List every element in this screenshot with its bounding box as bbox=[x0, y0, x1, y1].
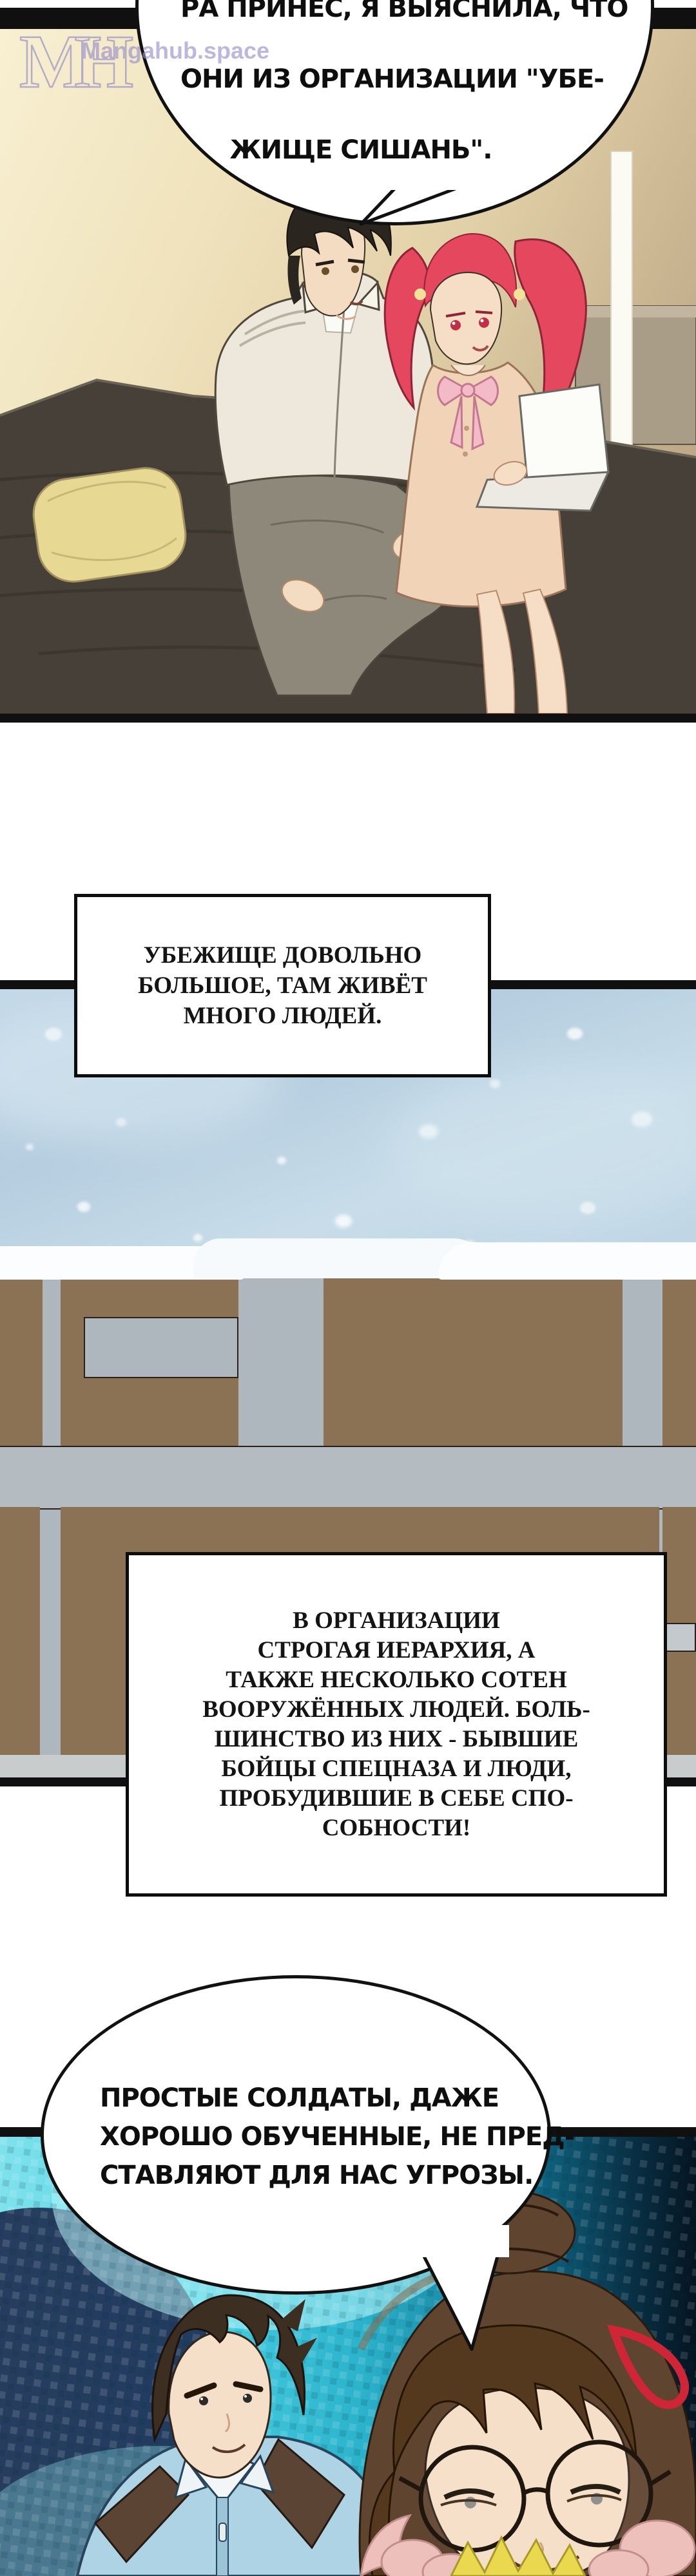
caption-box-organization: В ОРГАНИЗАЦИИ СТРОГАЯ ИЕРАРХИЯ, А ТАКЖЕ … bbox=[126, 1552, 667, 1897]
wall-gray-band bbox=[0, 1446, 696, 1510]
speech-bubble-soldiers-tail bbox=[0, 2190, 696, 2383]
watermark-site: Mangahub.space bbox=[81, 37, 269, 64]
pillow bbox=[29, 464, 190, 586]
bubble-soldiers-line: ПРОСТЫЕ СОЛДАТЫ, ДАЖЕ bbox=[100, 2079, 474, 2117]
caption-line: БОЛЬШОЕ, ТАМ ЖИВЁТ bbox=[138, 971, 427, 1001]
bubble-soldiers-line: ХОРОШО ОБУЧЕННЫЕ, НЕ ПРЕД- bbox=[100, 2117, 474, 2156]
bubble-top-line: ЖИЩЕ СИШАНЬ". bbox=[180, 115, 541, 185]
caption-organization-text: В ОРГАНИЗАЦИИ СТРОГАЯ ИЕРАРХИЯ, А ТАКЖЕ … bbox=[202, 1606, 590, 1843]
manga-page: РА ПРИНЁС, Я ВЫЯСНИЛА, ЧТО ОНИ ИЗ ОРГАНИ… bbox=[0, 0, 696, 2576]
caption-box-shelter: УБЕЖИЩЕ ДОВОЛЬНО БОЛЬШОЕ, ТАМ ЖИВЁТ МНОГ… bbox=[74, 894, 491, 1077]
speech-bubble-soldiers-text: ПРОСТЫЕ СОЛДАТЫ, ДАЖЕ ХОРОШО ОБУЧЕННЫЕ, … bbox=[100, 2079, 474, 2195]
bubble-soldiers-line: СТАВЛЯЮТ ДЛЯ НАС УГРОЗЫ. bbox=[100, 2156, 474, 2195]
caption-line: ШИНСТВО ИЗ НИХ - БЫВШИЕ bbox=[202, 1725, 590, 1754]
caption-line: СОБНОСТИ! bbox=[202, 1814, 590, 1843]
caption-line: СТРОГАЯ ИЕРАРХИЯ, А bbox=[202, 1636, 590, 1665]
caption-line: В ОРГАНИЗАЦИИ bbox=[202, 1606, 590, 1636]
caption-line: БОЙЦЫ СПЕЦНАЗА И ЛЮДИ, bbox=[202, 1754, 590, 1784]
speech-bubble-top-text: РА ПРИНЁС, Я ВЫЯСНИЛА, ЧТО ОНИ ИЗ ОРГАНИ… bbox=[180, 0, 541, 185]
caption-line: УБЕЖИЩЕ ДОВОЛЬНО bbox=[138, 940, 427, 971]
caption-shelter-text: УБЕЖИЩЕ ДОВОЛЬНО БОЛЬШОЕ, ТАМ ЖИВЁТ МНОГ… bbox=[138, 940, 427, 1031]
panel1-bottom-border bbox=[0, 714, 696, 723]
caption-line: ПРОБУДИВШИЕ В СЕБЕ СПО- bbox=[202, 1784, 590, 1814]
snowdrift bbox=[0, 1235, 696, 1280]
caption-line: ТАКЖЕ НЕСКОЛЬКО СОТЕН bbox=[202, 1665, 590, 1695]
caption-line: ВООРУЖЁННЫХ ЛЮДЕЙ. БОЛЬ- bbox=[202, 1695, 590, 1725]
caption-line: МНОГО ЛЮДЕЙ. bbox=[138, 1001, 427, 1031]
